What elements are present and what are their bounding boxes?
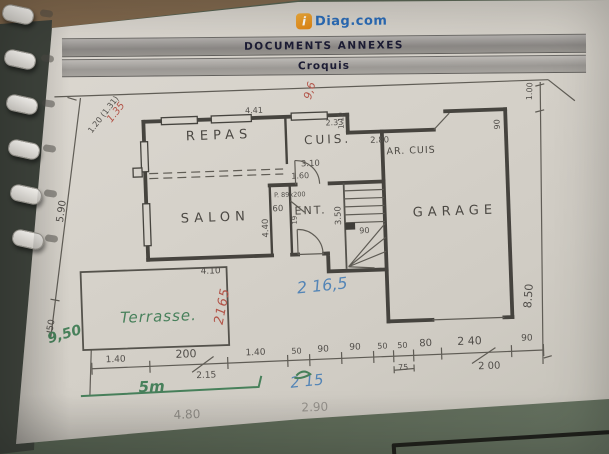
dashed-beam-line: [149, 169, 283, 179]
room-ent: ENT.: [294, 203, 327, 217]
dim-bottom-left-total: 4.80: [173, 407, 200, 422]
chain-2: 200: [175, 347, 196, 361]
room-terrasse: Terrasse.: [120, 306, 197, 327]
room-cuis: CUIS.: [304, 132, 352, 148]
red-note-terrasse: 2165: [212, 287, 234, 326]
chain-2-sub: 2.15: [196, 370, 216, 381]
photographed-document: i Diag.com DOCUMENTS ANNEXES Croquis: [0, 0, 609, 454]
red-note-cuis: 9,6: [301, 80, 318, 100]
chain-78-sub: 75: [398, 363, 408, 372]
chain-8: 50: [397, 341, 407, 350]
dim-ent-opening: 1.60: [291, 171, 309, 181]
room-ar-cuis: AR. CUIS: [386, 145, 436, 158]
dim-ent-width: 3.10: [301, 159, 320, 170]
dim-closet-height: 4.40: [261, 218, 272, 237]
green-underline: [80, 376, 261, 396]
room-salon: SALON: [181, 209, 251, 226]
room-repas: REPAS: [186, 127, 253, 144]
dim-left-height: 5.90: [55, 200, 69, 224]
chain-7: 50: [377, 341, 387, 350]
door-size-label: P. 89x200: [274, 190, 306, 199]
blue-note-chain: 2 15: [289, 370, 324, 391]
dim-arcuis-width: 2.80: [370, 135, 389, 146]
chain-11: 90: [521, 333, 533, 343]
idiag-logo-icon: i: [296, 13, 312, 29]
room-garage: GARAGE: [412, 203, 497, 221]
dim-cuis-jog: 1.10: [336, 112, 346, 129]
idiag-logo: i Diag.com: [296, 13, 388, 30]
chain-10-sub: 2 00: [478, 361, 501, 373]
dim-stair-width: 90: [359, 226, 369, 235]
chain-10: 2 40: [457, 334, 482, 348]
dim-ent-height: 3.50: [333, 206, 344, 225]
floor-plan-sketch: 4.41 2.33 1.10 2.80 90 1.00 8.50 5.90 50…: [34, 65, 591, 440]
chain-6: 90: [349, 342, 361, 352]
dim-repas-width: 4.41: [245, 106, 263, 116]
dim-right-height: 8.50: [521, 283, 536, 308]
black-framed-object: [392, 425, 609, 454]
blue-note-center: 2 16,5: [296, 273, 349, 297]
dim-salon-width: 4.10: [200, 266, 221, 277]
dim-garage-door-side: 90: [492, 119, 501, 129]
chain-1: 1.40: [105, 355, 126, 366]
chain-4: 50: [291, 346, 301, 355]
dim-right-top: 1.00: [525, 82, 535, 100]
idiag-logo-text: Diag.com: [315, 13, 388, 29]
dim-bottom-right-total: 2.90: [301, 400, 328, 415]
dim-closet-width: 60: [272, 204, 283, 214]
chain-3: 1.40: [245, 348, 266, 359]
chain-5: 90: [317, 344, 329, 354]
chain-9: 80: [419, 338, 432, 349]
